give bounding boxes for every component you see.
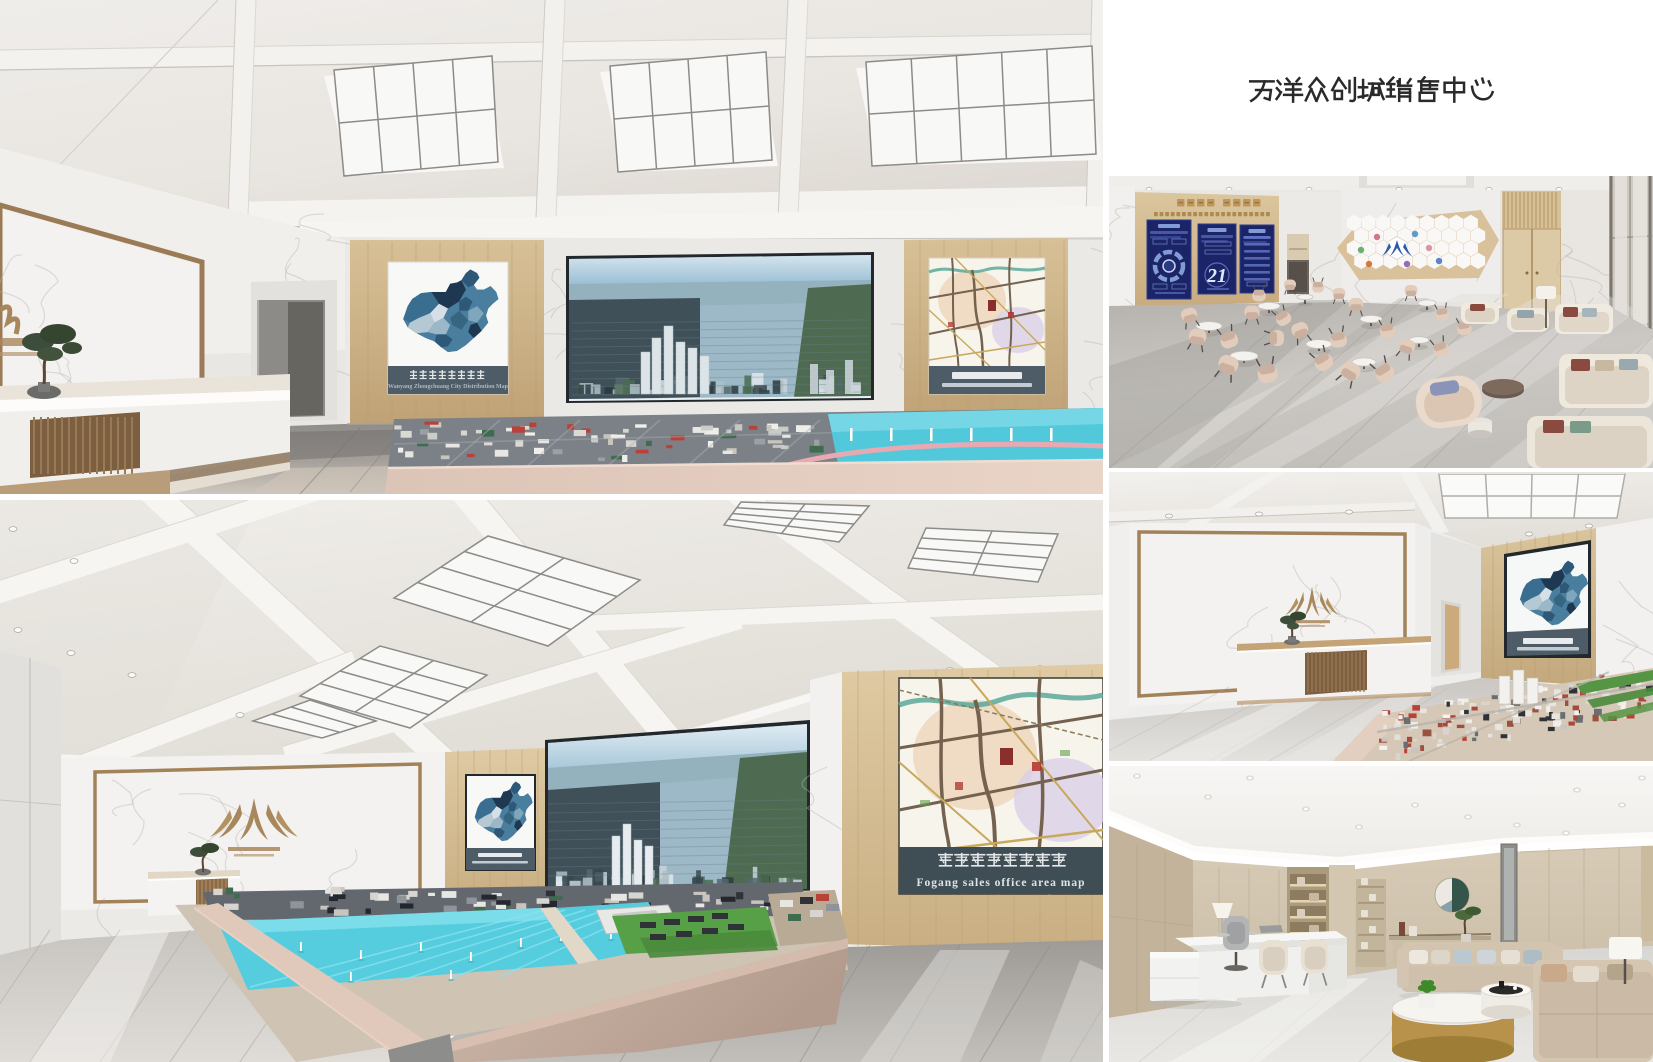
- svg-text:Wanyang Zhongchuang City Distr: Wanyang Zhongchuang City Distribution Ma…: [388, 384, 509, 390]
- svg-text:Fogang sales office area m: Fogang sales office area map: [917, 877, 1086, 889]
